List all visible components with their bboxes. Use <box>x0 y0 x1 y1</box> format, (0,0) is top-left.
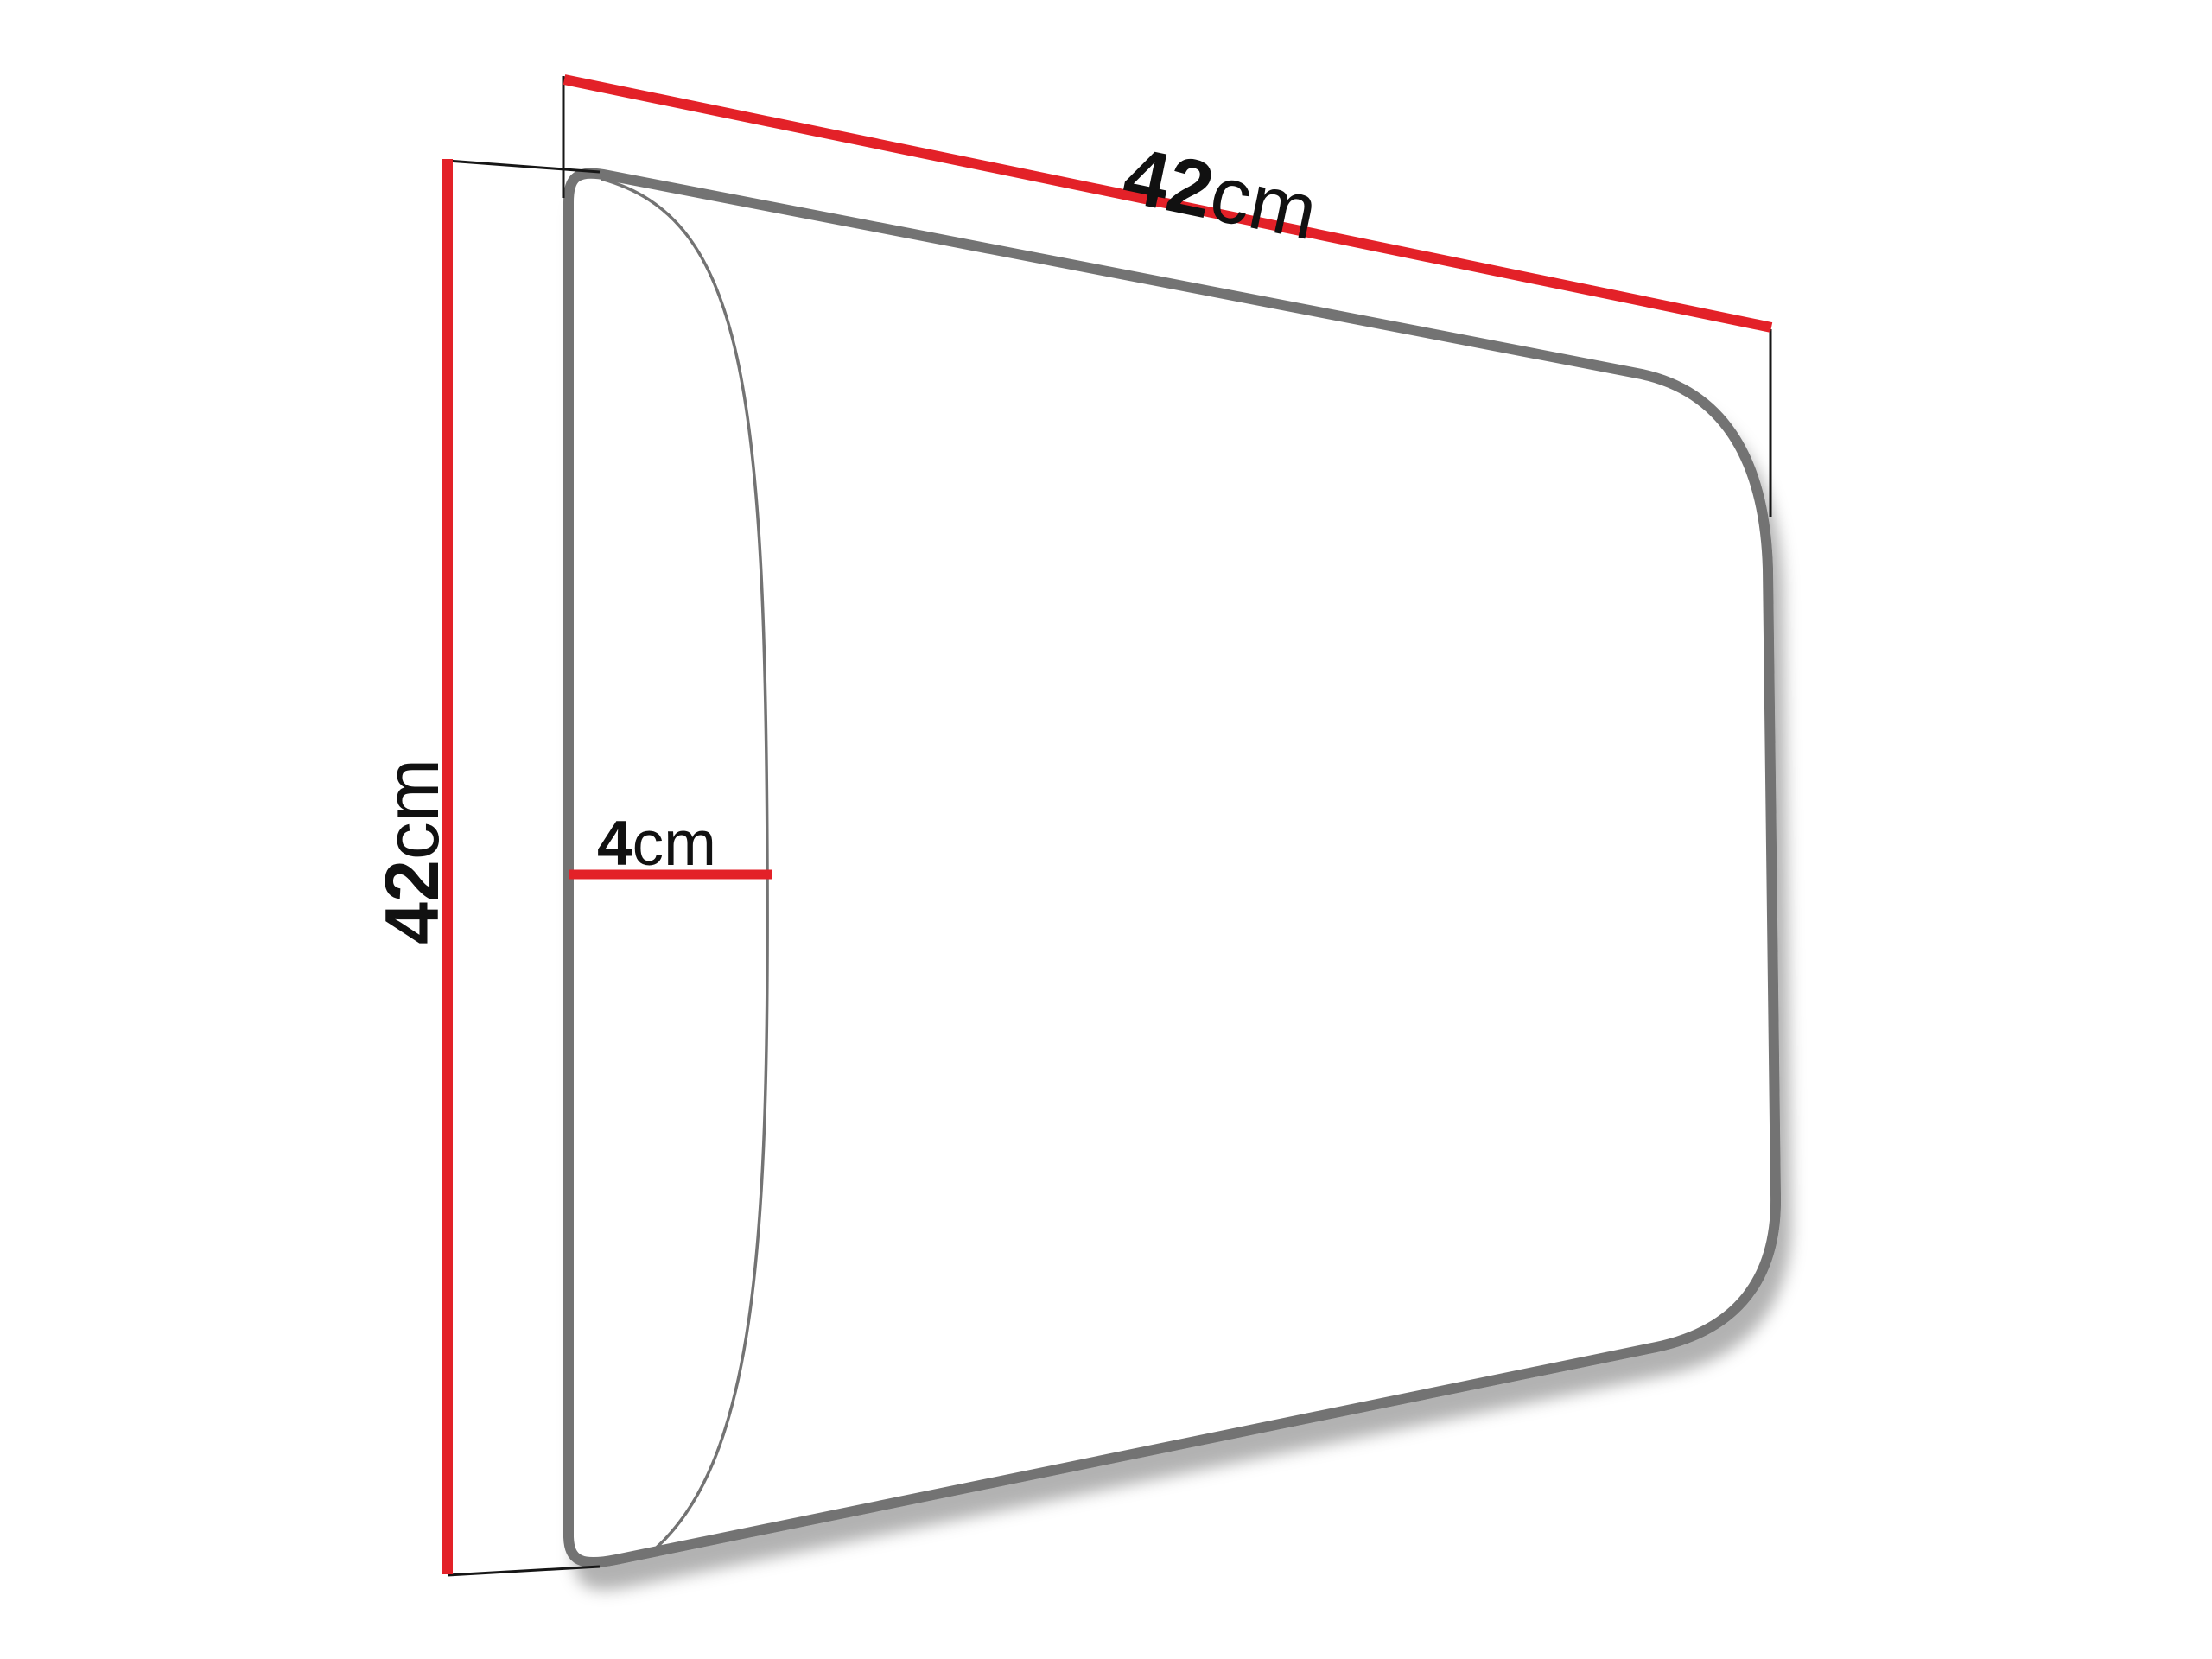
height-dimension-label: 42cm <box>369 759 454 944</box>
panel-outline <box>569 174 1776 1562</box>
panel-drawing <box>569 174 1776 1562</box>
depth-unit: cm <box>632 809 716 879</box>
width-value: 42 <box>1116 131 1221 236</box>
depth-value: 4 <box>597 809 632 879</box>
height-value: 42 <box>369 860 454 944</box>
depth-dimension-label: 4cm <box>597 809 716 879</box>
panel-dimension-diagram: 42cm 42cm 4cm <box>0 0 2212 1659</box>
height-unit: cm <box>369 759 454 860</box>
